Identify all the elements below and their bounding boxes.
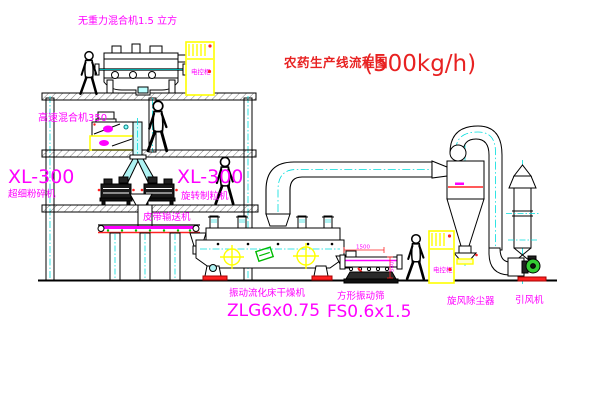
label-cyclone: 旋风除尘器 bbox=[447, 295, 495, 307]
indicator-light-icon bbox=[208, 44, 211, 47]
indicator-light-icon bbox=[448, 268, 451, 271]
exhaust-duct bbox=[266, 161, 447, 226]
dim-1500: 1500 bbox=[356, 245, 370, 251]
person-icon bbox=[81, 52, 97, 94]
vibrating-screen: 1500 540 bbox=[340, 245, 402, 284]
label-dryer-name: 振动流化床干燥机 bbox=[229, 287, 306, 299]
label-screen-name: 方形振动筛 bbox=[337, 290, 385, 302]
dim-540: 540 bbox=[390, 261, 396, 272]
label-granulator-name: 旋转制粒机 bbox=[181, 190, 229, 202]
indicator-light-icon bbox=[208, 70, 211, 73]
label-fan: 引风机 bbox=[515, 294, 544, 306]
label-high-speed-mixer: 高速混合机350 bbox=[38, 111, 107, 124]
stack-cap-icon bbox=[509, 176, 536, 188]
label-dryer-model: ZLG6x0.75 bbox=[227, 301, 320, 321]
cyclone-separator bbox=[447, 126, 502, 266]
control-cabinet-top: 电控柜 bbox=[186, 42, 214, 95]
label-pulverizer-name: 超细粉碎机 bbox=[8, 188, 56, 200]
control-cabinet-right: 电控柜 bbox=[429, 231, 454, 283]
gravity-free-mixer bbox=[95, 44, 193, 95]
fan-inlet-elbow bbox=[489, 248, 510, 275]
conveyor-support-columns bbox=[110, 233, 180, 280]
label-granulator-model: XL-300 bbox=[177, 166, 243, 188]
person-icon bbox=[407, 235, 424, 279]
belt-conveyor bbox=[98, 225, 200, 233]
process-flow-diagram: 电控柜 bbox=[0, 0, 600, 403]
label-belt-conveyor: 皮带输送机 bbox=[143, 211, 191, 223]
title-capacity: (500kg/h) bbox=[364, 51, 476, 77]
indicator-light-icon bbox=[448, 234, 451, 237]
induced-draft-fan bbox=[508, 256, 546, 281]
label-screen-model: FS0.6x1.5 bbox=[327, 302, 411, 322]
label-gravity-mixer: 无重力混合机1.5 立方 bbox=[78, 14, 177, 27]
label-pulverizer-model: XL-300 bbox=[8, 166, 74, 188]
pulverizer-left bbox=[98, 177, 135, 205]
cad-drawing-canvas: 电控柜 bbox=[0, 0, 600, 403]
